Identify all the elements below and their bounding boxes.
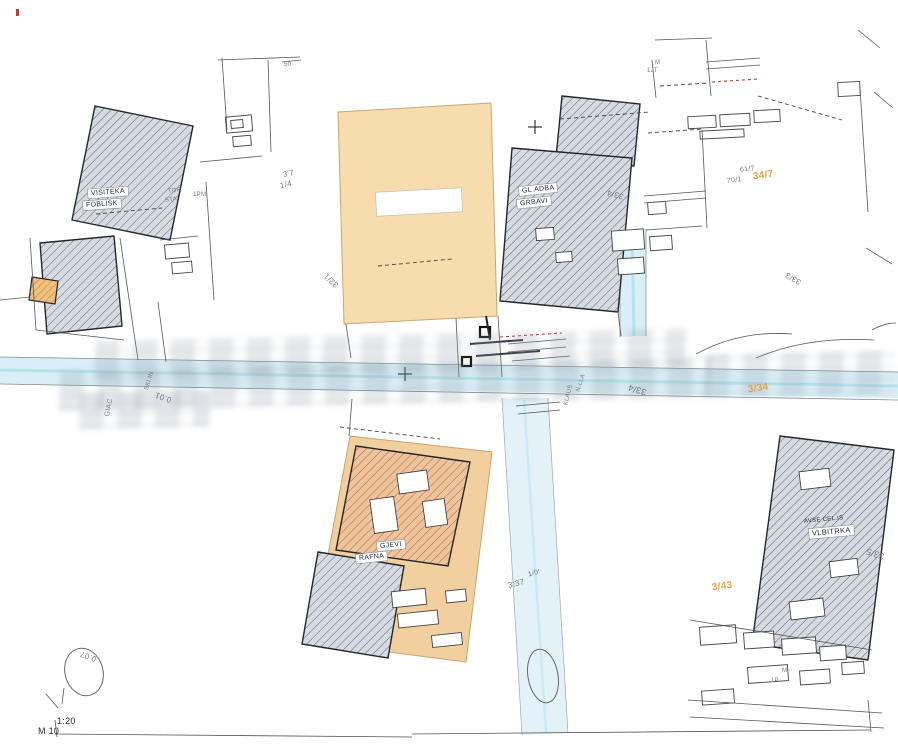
building-east xyxy=(752,436,894,660)
building-west xyxy=(29,236,122,334)
building-north xyxy=(500,96,640,312)
round-annotations xyxy=(59,644,562,705)
site-plan-canvas: 50M1JTVISITEKAFOBLISKTOPSTA1PM3'71/432/1… xyxy=(0,0,898,750)
building-northwest xyxy=(72,106,193,240)
plan-linework xyxy=(0,0,898,750)
red-corner-mark xyxy=(16,9,19,16)
road-horizontal xyxy=(0,357,898,400)
parcel-north-orange xyxy=(338,103,497,324)
